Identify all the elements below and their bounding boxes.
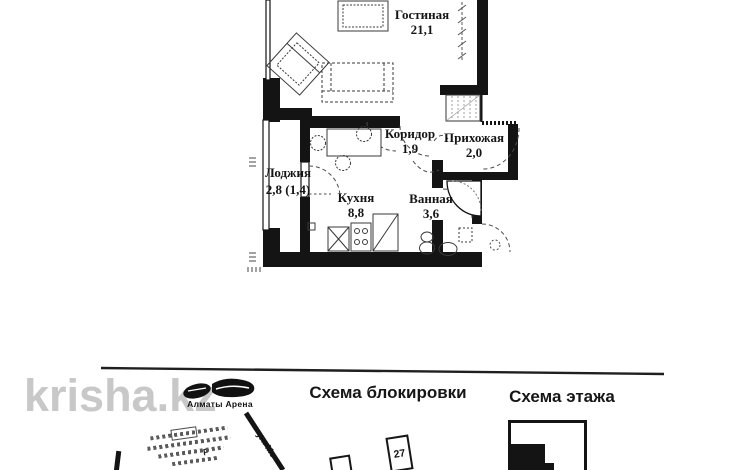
stove xyxy=(351,223,371,251)
washer xyxy=(459,228,472,242)
room-area: 2,0 xyxy=(432,145,516,160)
room-label-kitchen: Кухня 8,8 xyxy=(314,190,398,220)
room-name: Коридор xyxy=(385,126,435,141)
room-name: Гостиная xyxy=(395,7,449,22)
floor-scheme-step xyxy=(545,463,554,470)
toilet xyxy=(421,232,433,242)
almaty-arena-stadium-icon xyxy=(182,379,255,402)
floor-scheme-title: Схема этажа xyxy=(504,387,620,407)
divider-line xyxy=(101,368,664,374)
room-area: 8,8 xyxy=(314,205,398,220)
logo-caption: Алматы Арена xyxy=(179,399,261,409)
room-area: 21,1 xyxy=(372,22,472,37)
sofa xyxy=(322,63,393,102)
room-name: Лоджия xyxy=(265,165,311,180)
room-label-hallway: Прихожая 2,0 xyxy=(432,130,516,160)
floor-scheme-apartment-block xyxy=(509,444,545,470)
room-label-living: Гостиная 21,1 xyxy=(372,7,472,37)
chair xyxy=(336,156,351,171)
sink-counter xyxy=(328,227,349,251)
outer-door-arc xyxy=(482,224,510,252)
room-name: Ванная xyxy=(409,191,453,206)
room-name: Кухня xyxy=(338,190,375,205)
chair xyxy=(311,136,326,151)
room-name: Прихожая xyxy=(444,130,504,145)
wardrobe-niche xyxy=(446,95,480,121)
building-partial xyxy=(329,455,354,470)
floorplan-scan: krisha.kz xyxy=(0,0,750,470)
room-label-bathroom: Ванная 3,6 xyxy=(389,191,473,221)
room-area: 3,6 xyxy=(389,206,473,221)
block-scheme-title: Схема блокировки xyxy=(300,383,476,403)
